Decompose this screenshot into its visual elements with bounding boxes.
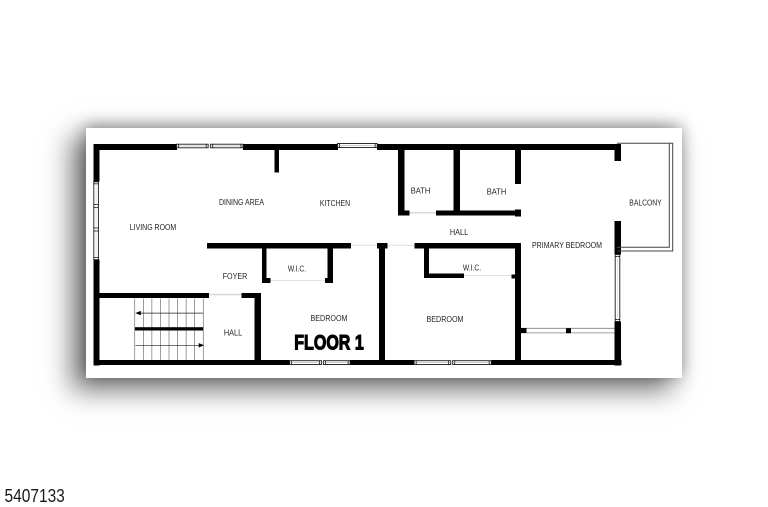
svg-text:HALL: HALL: [224, 327, 243, 337]
svg-text:DINING AREA: DINING AREA: [219, 197, 264, 207]
svg-text:W.I.C.: W.I.C.: [288, 264, 306, 274]
svg-text:BATH: BATH: [411, 186, 431, 196]
svg-text:KITCHEN: KITCHEN: [320, 198, 350, 208]
svg-text:FOYER: FOYER: [223, 271, 248, 281]
svg-text:W.I.C.: W.I.C.: [463, 263, 481, 273]
svg-text:BALCONY: BALCONY: [629, 197, 662, 207]
svg-text:HALL: HALL: [450, 227, 469, 237]
svg-text:BEDROOM: BEDROOM: [427, 314, 464, 324]
svg-text:BEDROOM: BEDROOM: [311, 313, 348, 323]
svg-text:BATH: BATH: [487, 186, 507, 196]
svg-text:5407133: 5407133: [5, 486, 65, 506]
svg-text:PRIMARY BEDROOM: PRIMARY BEDROOM: [532, 240, 602, 250]
svg-text:LIVING ROOM: LIVING ROOM: [130, 222, 177, 232]
svg-text:FLOOR 1: FLOOR 1: [294, 332, 364, 355]
